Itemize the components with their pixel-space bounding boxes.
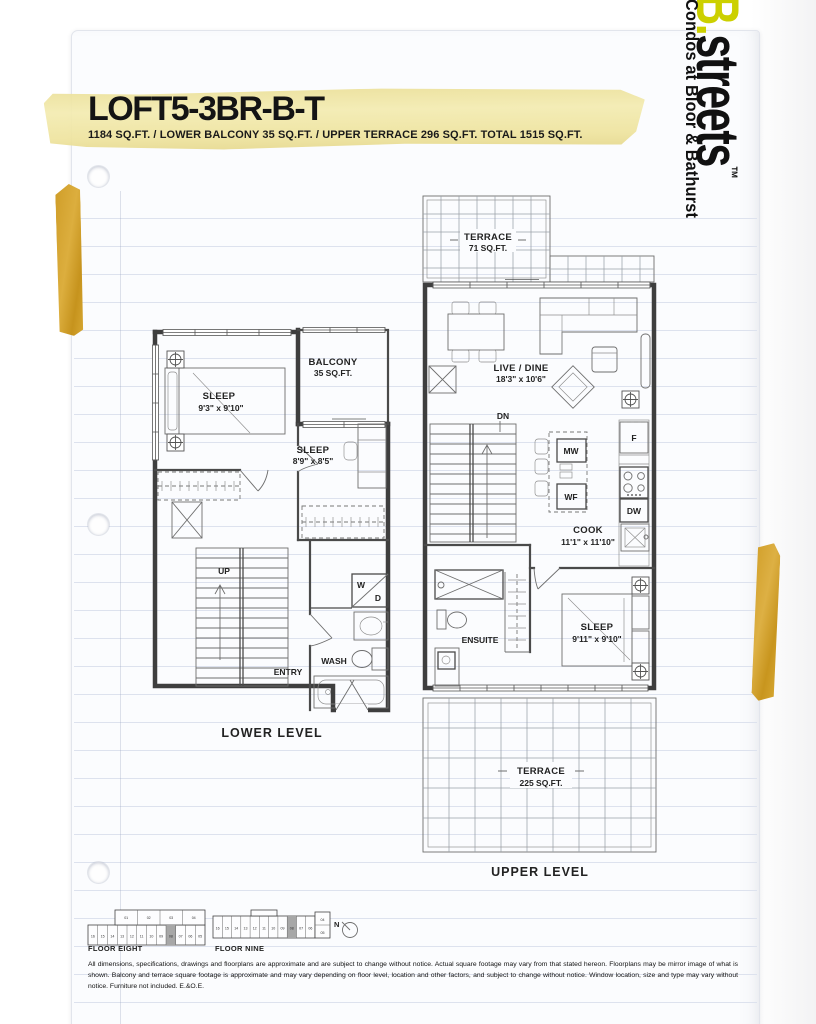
punch-hole <box>88 862 109 883</box>
trademark-symbol: ™ <box>721 166 741 179</box>
page: LOFT5-3BR-B-T 1184 SQ.FT. / LOWER BALCON… <box>0 0 816 1024</box>
ruled-lines <box>74 191 757 1024</box>
brand-tagline: Condos at Bloor & Bathurst <box>683 0 701 218</box>
masking-tape-left <box>55 184 84 337</box>
notebook-paper <box>71 30 760 1024</box>
title-block: LOFT5-3BR-B-T 1184 SQ.FT. / LOWER BALCON… <box>88 92 583 141</box>
page-subtitle: 1184 SQ.FT. / LOWER BALCONY 35 SQ.FT. / … <box>88 129 583 141</box>
page-title: LOFT5-3BR-B-T <box>88 92 583 126</box>
punch-hole <box>88 166 109 187</box>
punch-hole <box>88 514 109 535</box>
margin-line <box>120 191 121 1024</box>
disclaimer-text: All dimensions, specifications, drawings… <box>88 960 738 993</box>
